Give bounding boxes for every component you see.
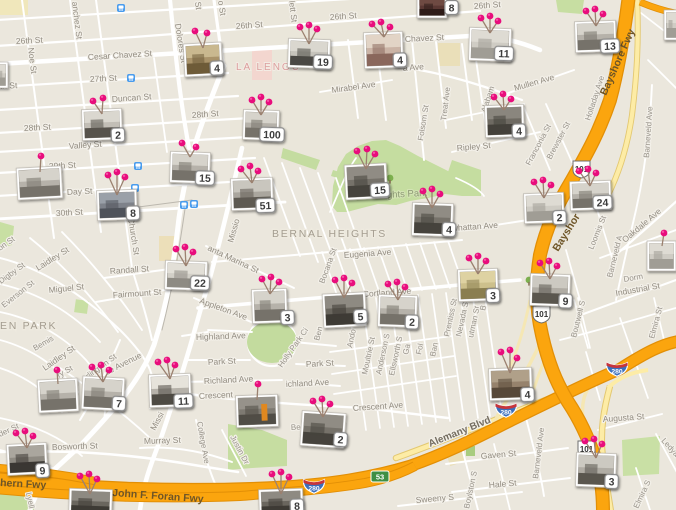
svg-text:26th St: 26th St: [16, 35, 44, 46]
svg-text:2: 2: [337, 434, 344, 446]
svg-text:28th St: 28th St: [24, 122, 52, 133]
svg-text:22: 22: [194, 278, 206, 290]
svg-text:5: 5: [357, 311, 364, 323]
svg-text:Day St: Day St: [67, 186, 94, 197]
svg-text:26th St: 26th St: [473, 0, 501, 11]
svg-text:24: 24: [596, 197, 608, 209]
svg-text:30th St: 30th St: [56, 207, 84, 218]
svg-text:hern Fwy: hern Fwy: [0, 477, 47, 491]
svg-text:9: 9: [562, 296, 568, 308]
svg-text:8: 8: [130, 208, 136, 220]
svg-text:19: 19: [317, 57, 329, 69]
svg-text:2: 2: [115, 130, 121, 142]
svg-text:28th St: 28th St: [191, 108, 219, 120]
svg-text:Park St: Park St: [306, 358, 335, 369]
svg-text:3: 3: [608, 476, 614, 488]
svg-text:26th St: 26th St: [329, 10, 357, 22]
svg-text:9: 9: [39, 465, 46, 477]
svg-text:15: 15: [374, 184, 386, 197]
svg-text:26th St: 26th St: [235, 19, 263, 31]
svg-text:100: 100: [263, 129, 281, 142]
svg-text:Be: Be: [291, 422, 302, 432]
svg-text:3: 3: [490, 290, 496, 302]
svg-text:Murray St: Murray St: [144, 435, 182, 446]
svg-text:13: 13: [604, 41, 616, 53]
svg-text:27th St: 27th St: [90, 73, 118, 84]
svg-text:51: 51: [259, 200, 271, 212]
svg-text:4: 4: [524, 389, 530, 401]
svg-text:2: 2: [556, 212, 562, 224]
svg-text:Bosworth St: Bosworth St: [52, 440, 99, 452]
svg-text:Park St: Park St: [208, 356, 237, 367]
svg-text:BERNAL HEIGHTS: BERNAL HEIGHTS: [272, 228, 387, 240]
svg-text:11: 11: [498, 48, 510, 60]
svg-text:Crescent: Crescent: [199, 389, 234, 401]
svg-text:4: 4: [214, 63, 221, 75]
svg-text:EN PARK: EN PARK: [0, 320, 57, 332]
svg-text:4: 4: [516, 126, 522, 138]
svg-text:8: 8: [449, 2, 455, 14]
svg-text:11: 11: [178, 396, 190, 408]
svg-text:8: 8: [294, 501, 300, 510]
svg-text:4: 4: [397, 55, 403, 67]
svg-text:53: 53: [376, 473, 384, 482]
svg-text:4: 4: [446, 224, 452, 236]
svg-text:Chavez St: Chavez St: [405, 32, 445, 44]
svg-text:3: 3: [284, 312, 290, 324]
svg-text:15: 15: [199, 173, 211, 185]
svg-text:2: 2: [409, 317, 415, 329]
svg-text:7: 7: [116, 398, 123, 410]
svg-text:Highland Ave: Highland Ave: [196, 330, 247, 342]
svg-text:101: 101: [535, 310, 549, 319]
